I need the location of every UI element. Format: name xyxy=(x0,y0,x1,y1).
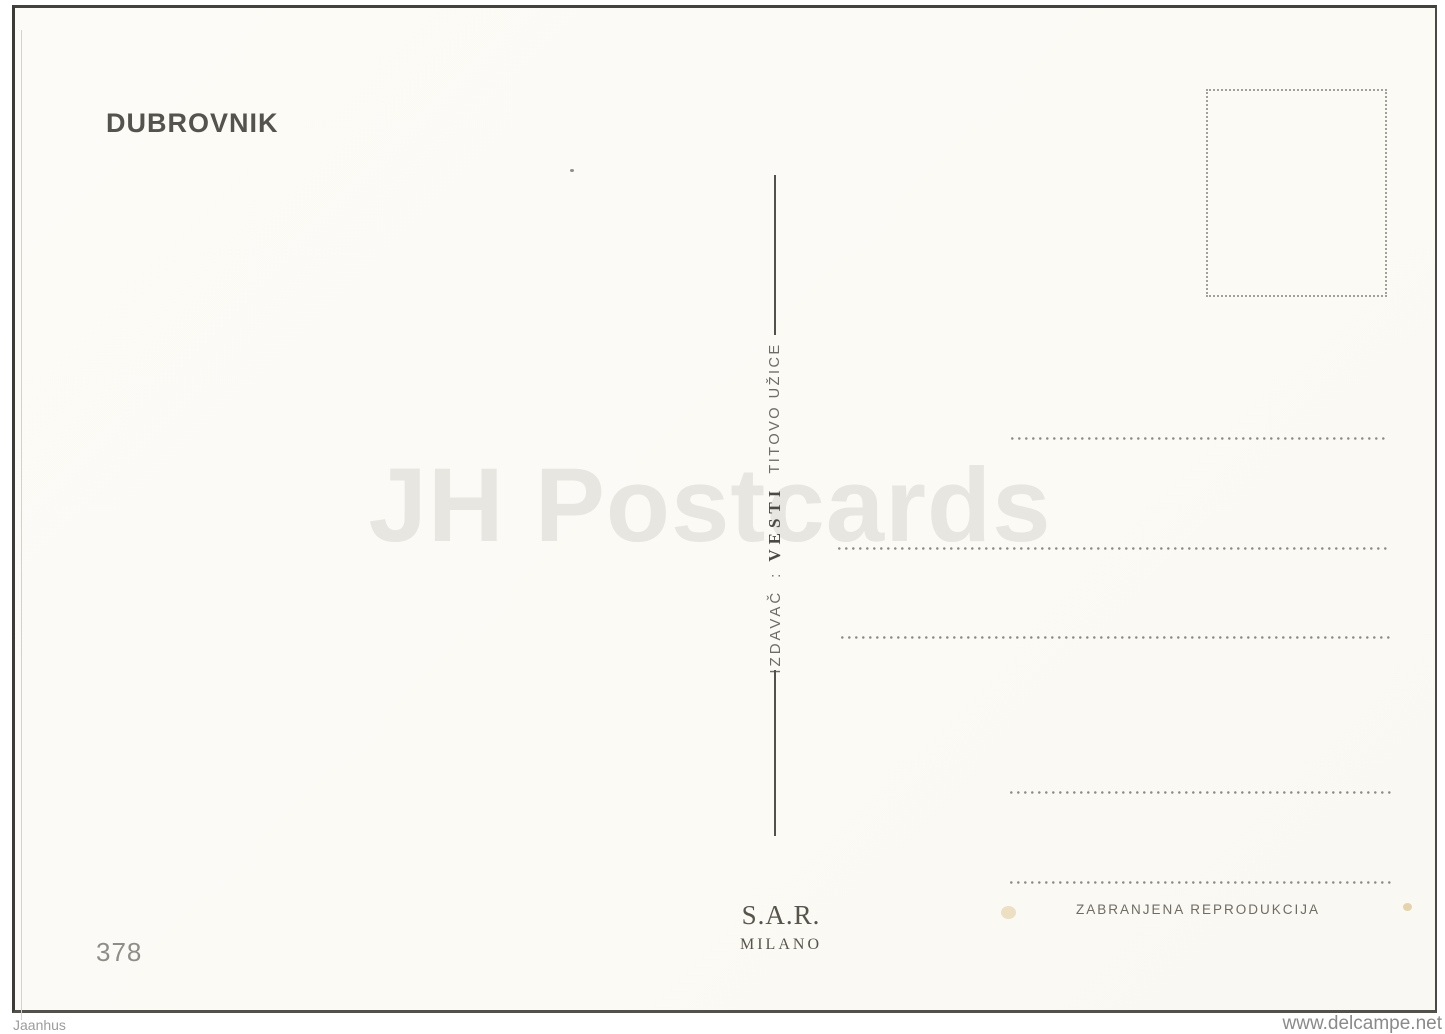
printer-name: S.A.R. xyxy=(740,900,822,931)
writing-line-1 xyxy=(1011,437,1388,440)
watermark: JH Postcards xyxy=(368,451,1051,561)
site-watermark: www.delcampe.net xyxy=(1283,1013,1442,1034)
writing-line-5 xyxy=(1010,881,1394,884)
card-number: 378 xyxy=(96,937,142,968)
publisher-label: IZDAVAČ xyxy=(767,590,784,674)
seller-name: Jaanhus xyxy=(13,1017,66,1033)
writing-line-4 xyxy=(1010,791,1394,794)
divider-line-bottom xyxy=(774,670,776,836)
publisher-location: TITOVO UŽICE xyxy=(767,342,783,473)
stain-speck-1 xyxy=(1001,906,1016,919)
writing-line-3 xyxy=(841,636,1390,639)
card-title: DUBROVNIK xyxy=(106,108,279,139)
publisher-name: VESTI xyxy=(765,486,785,562)
publisher-separator: : xyxy=(767,574,784,578)
writing-line-2 xyxy=(838,547,1388,550)
postcard-scan: JH Postcards DUBROVNIK IZDAVAČ : VESTI T… xyxy=(0,0,1445,1034)
reproduction-notice: ZABRANJENA REPRODUKCIJA xyxy=(1076,902,1320,917)
card-edge-shadow xyxy=(21,30,22,1020)
postcard-back: JH Postcards DUBROVNIK IZDAVAČ : VESTI T… xyxy=(12,5,1437,1013)
stain-speck-2 xyxy=(1403,903,1412,911)
printer-city: MILANO xyxy=(740,936,822,954)
ink-speck xyxy=(570,169,574,172)
stamp-box xyxy=(1206,89,1387,297)
printer-imprint: S.A.R. MILANO xyxy=(740,900,822,954)
